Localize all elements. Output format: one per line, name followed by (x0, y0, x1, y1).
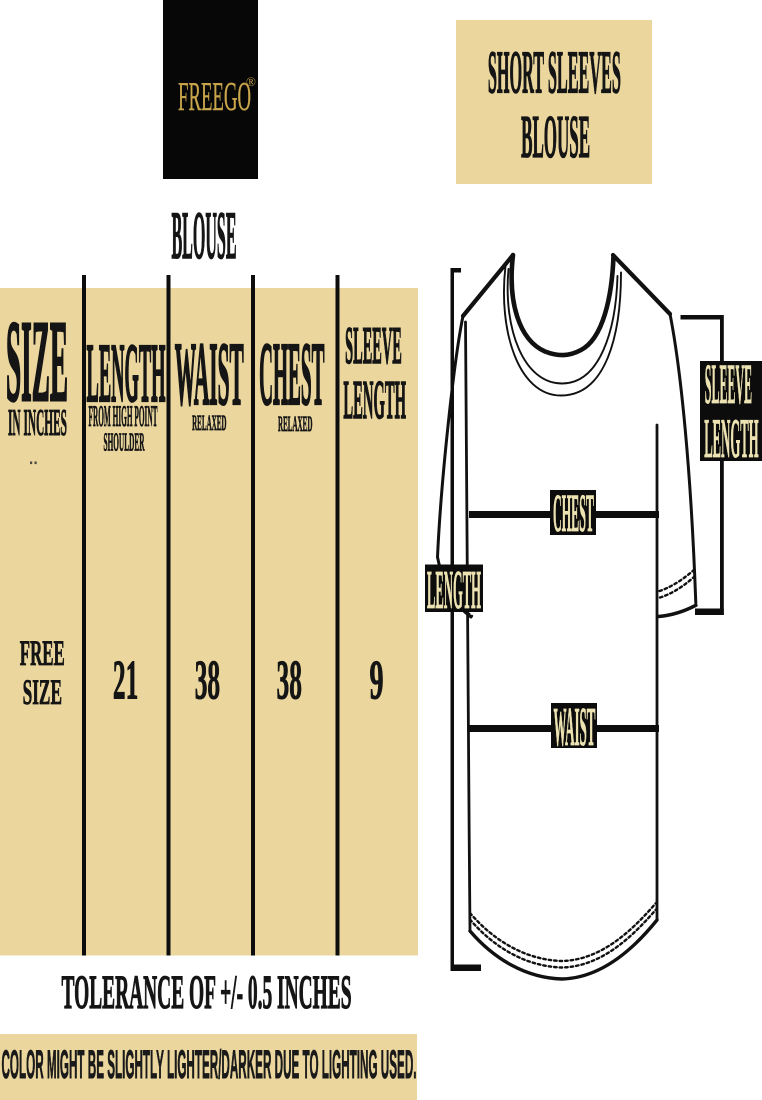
svg-text:RELAXED: RELAXED (278, 411, 312, 436)
svg-text:CHEST: CHEST (259, 325, 324, 424)
svg-text:®: ® (246, 74, 256, 89)
svg-text:CHEST: CHEST (553, 483, 594, 543)
svg-text:SLEEVE: SLEEVE (705, 353, 752, 416)
svg-text:FREEGO: FREEGO (178, 73, 251, 119)
svg-text:RELAXED: RELAXED (192, 410, 226, 435)
svg-text:SLEEVE: SLEEVE (345, 317, 402, 375)
svg-text:FREE: FREE (20, 633, 65, 673)
svg-text:9: 9 (370, 650, 384, 712)
svg-text:TOLERANCE OF +/- 0.5 INCHES: TOLERANCE OF +/- 0.5 INCHES (62, 966, 352, 1019)
svg-text:LENGTH: LENGTH (343, 369, 406, 430)
svg-text:WAIST: WAIST (554, 696, 596, 757)
svg-text:SHOULDER: SHOULDER (104, 428, 145, 457)
svg-text:38: 38 (195, 650, 220, 712)
svg-text:BLOUSE: BLOUSE (172, 197, 237, 273)
svg-text:BLOUSE: BLOUSE (521, 104, 590, 171)
svg-text:LENGTH: LENGTH (427, 559, 481, 620)
svg-text:21: 21 (113, 650, 138, 712)
svg-text:IN INCHES: IN INCHES (8, 402, 67, 444)
svg-text:LENGTH: LENGTH (704, 408, 758, 470)
svg-text:SHORT SLEEVES: SHORT SLEEVES (488, 40, 621, 107)
svg-text:38: 38 (277, 650, 302, 712)
svg-text:COLOR MIGHT BE SLIGHTLY LIGHTE: COLOR MIGHT BE SLIGHTLY LIGHTER/DARKER D… (2, 1043, 417, 1087)
svg-text:SIZE: SIZE (23, 672, 62, 712)
